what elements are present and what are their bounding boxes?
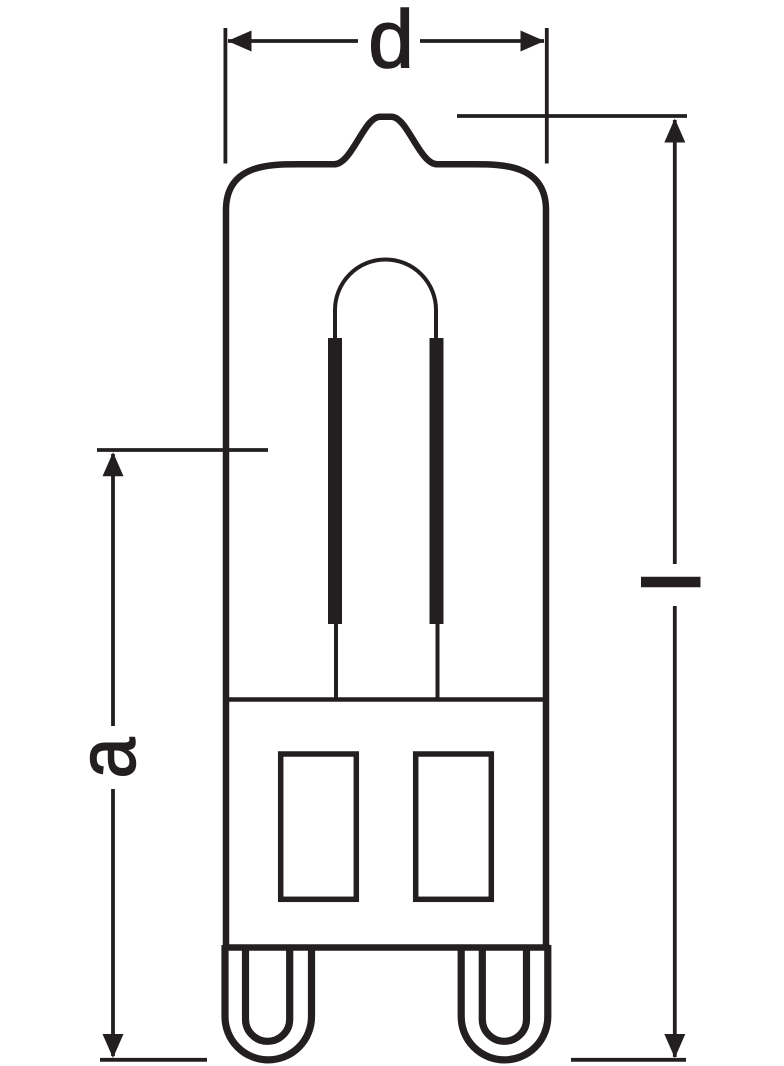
svg-text:a: a <box>60 737 153 779</box>
svg-text:d: d <box>368 0 414 85</box>
